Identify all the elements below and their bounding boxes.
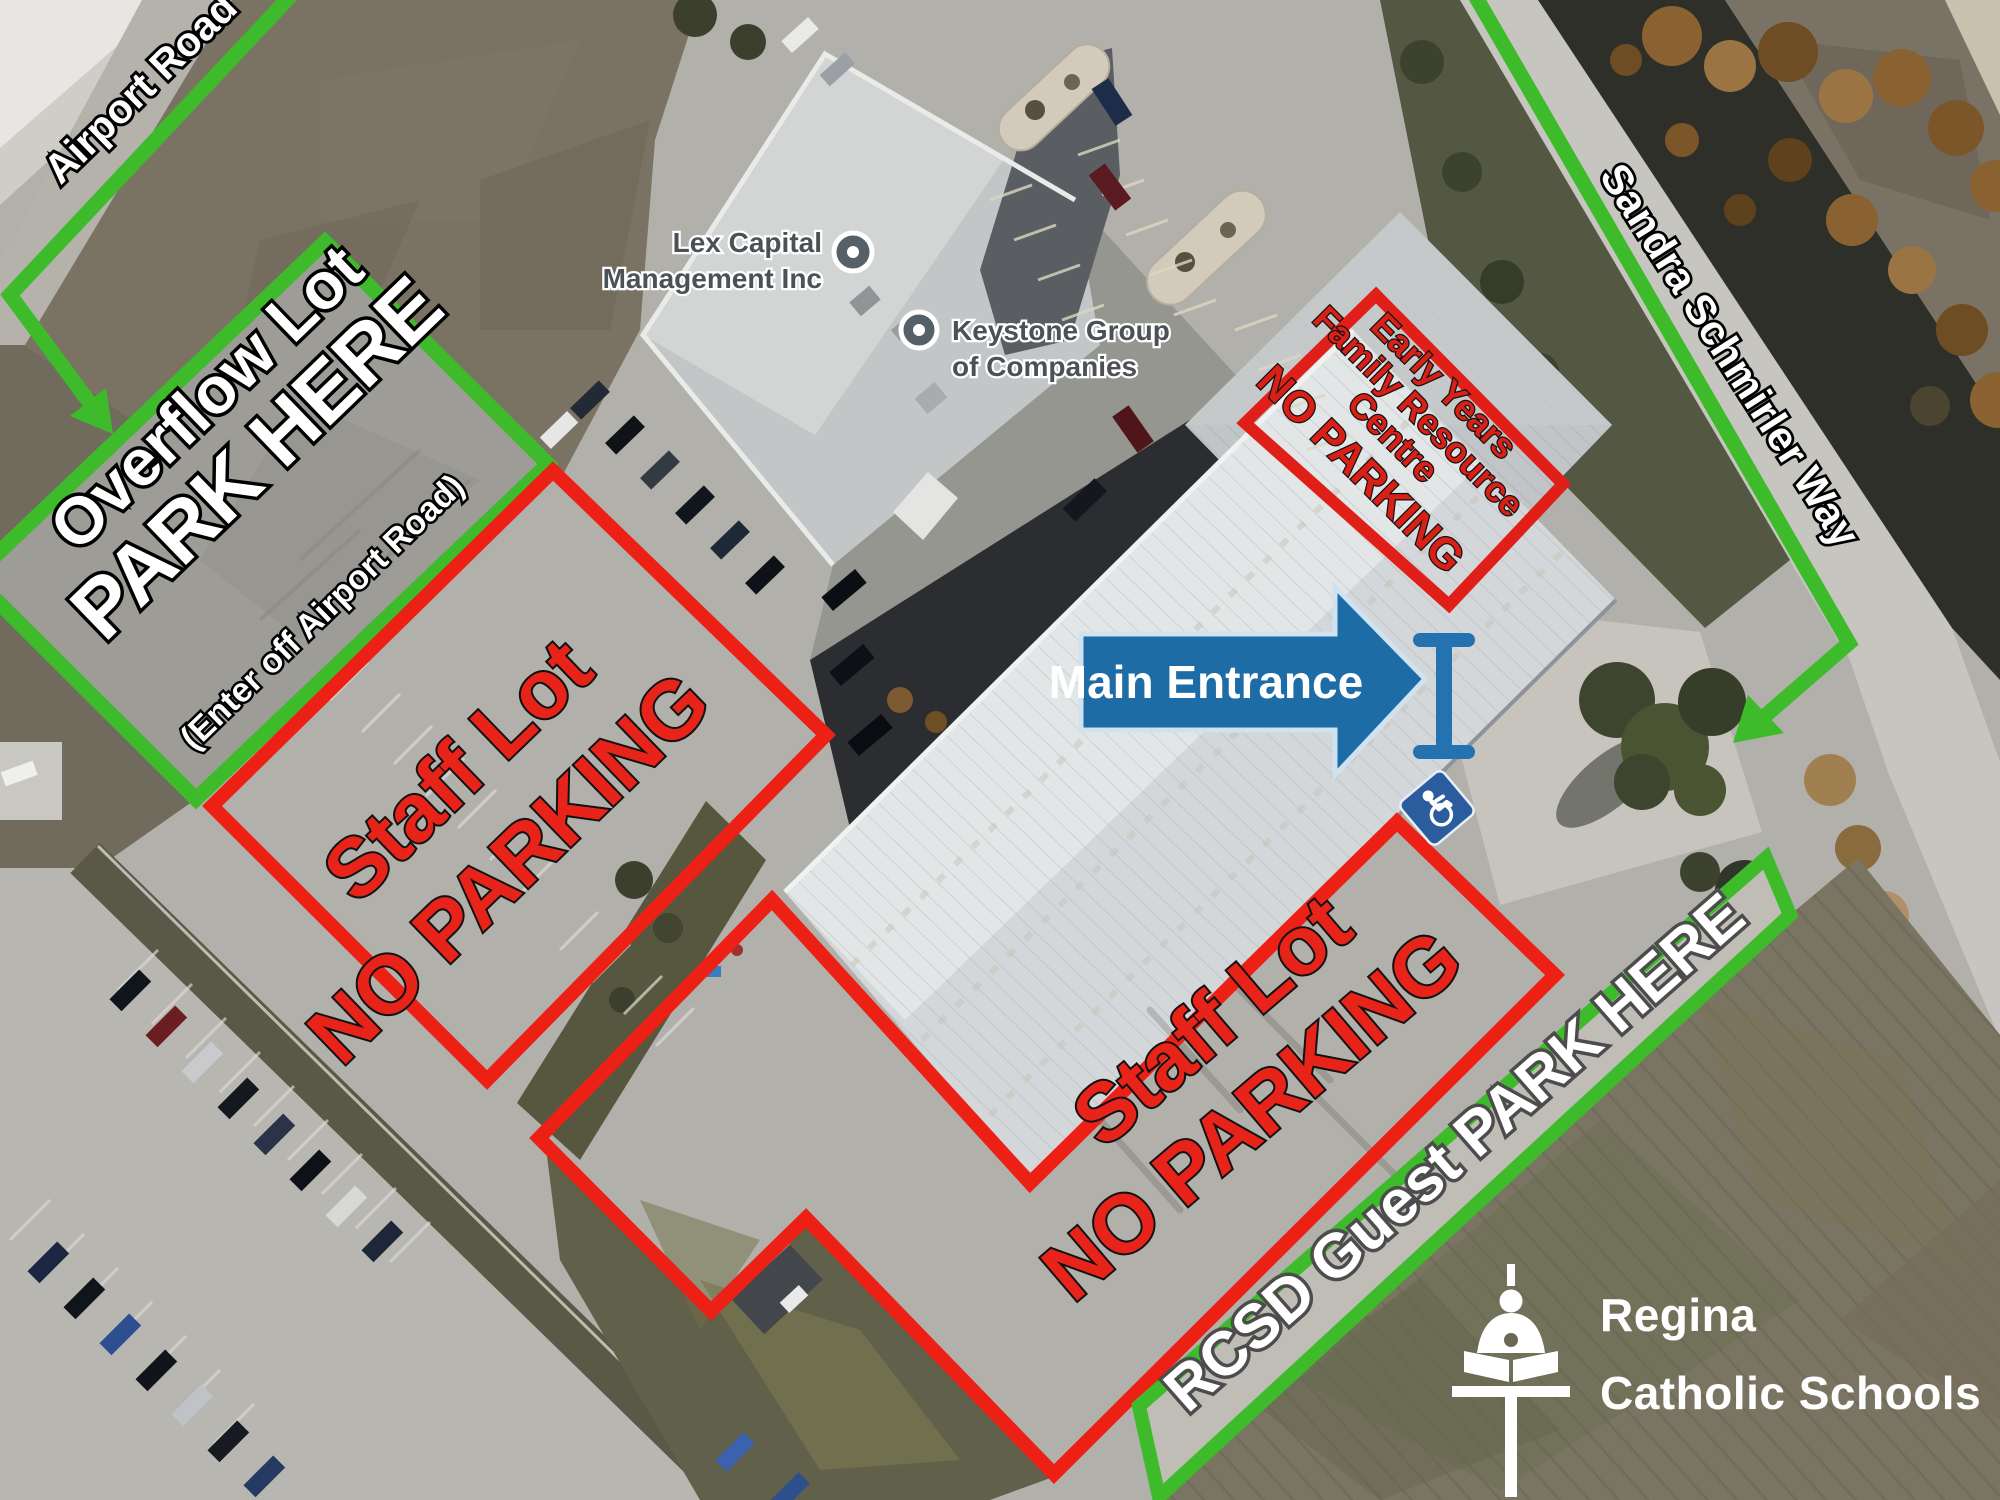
svg-text:Keystone Group: Keystone Group <box>952 315 1170 346</box>
svg-text:Catholic Schools: Catholic Schools <box>1600 1367 1981 1419</box>
svg-text:Management Inc: Management Inc <box>603 263 822 294</box>
svg-text:Regina: Regina <box>1600 1289 1756 1341</box>
svg-text:Main Entrance: Main Entrance <box>1049 656 1363 708</box>
svg-text:of Companies: of Companies <box>952 351 1137 382</box>
svg-text:Lex Capital: Lex Capital <box>673 227 822 258</box>
